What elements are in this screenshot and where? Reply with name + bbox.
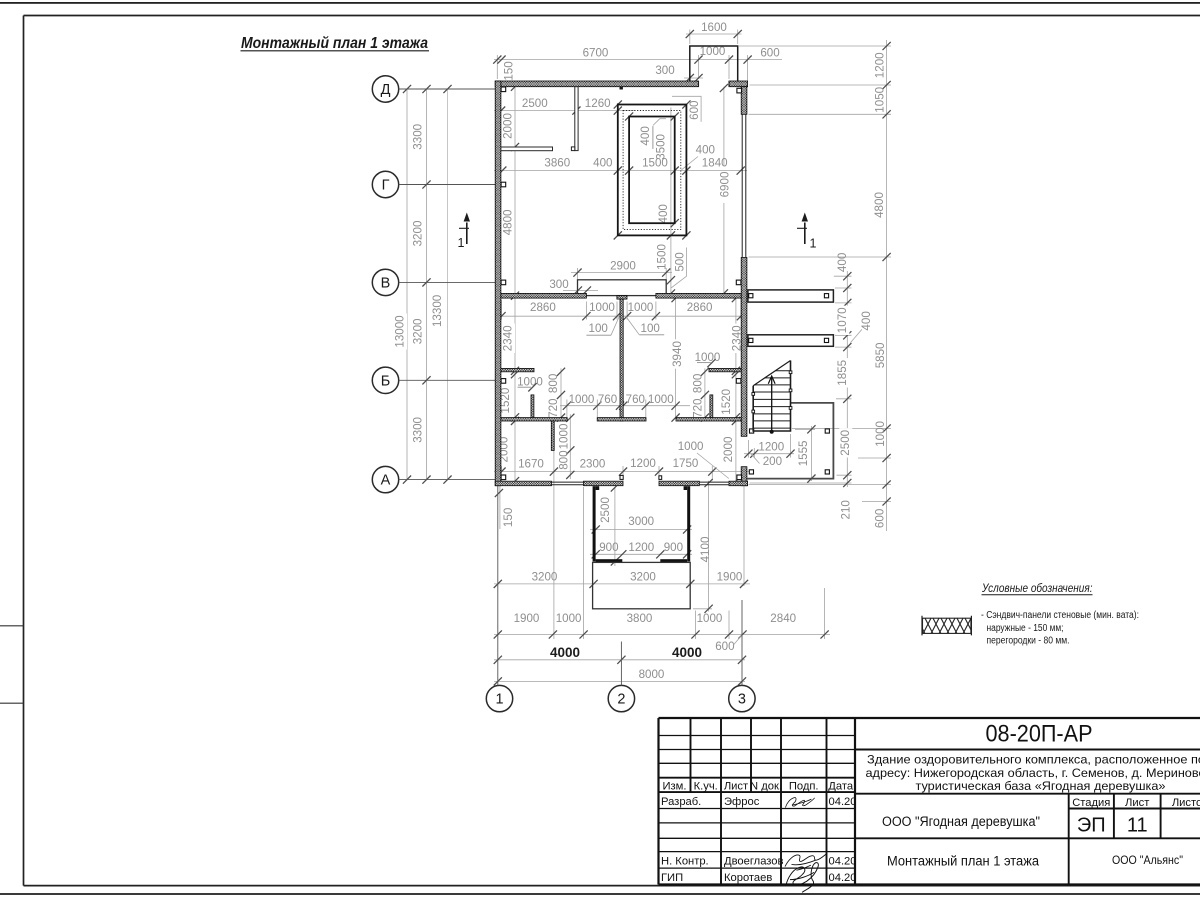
svg-text:11: 11 xyxy=(1127,815,1148,837)
svg-text:3200: 3200 xyxy=(532,570,558,583)
svg-text:720: 720 xyxy=(547,399,560,418)
svg-text:1200: 1200 xyxy=(758,440,784,453)
svg-text:3860: 3860 xyxy=(544,156,570,169)
svg-text:720: 720 xyxy=(691,399,704,418)
svg-text:Г: Г xyxy=(382,178,390,194)
svg-text:1555: 1555 xyxy=(797,441,810,467)
svg-text:1000: 1000 xyxy=(700,45,726,58)
svg-text:04.20: 04.20 xyxy=(829,872,857,884)
svg-text:Листов: Листов xyxy=(1172,797,1200,809)
svg-text:2000: 2000 xyxy=(722,437,735,463)
svg-text:1000: 1000 xyxy=(874,421,887,447)
svg-text:А: А xyxy=(381,473,391,489)
svg-text:400: 400 xyxy=(657,204,670,223)
svg-text:1000: 1000 xyxy=(697,612,723,625)
svg-text:наружные - 150 мм;: наружные - 150 мм; xyxy=(987,623,1064,634)
svg-text:400: 400 xyxy=(860,311,873,330)
svg-text:4800: 4800 xyxy=(502,210,515,236)
svg-text:6700: 6700 xyxy=(583,47,609,60)
svg-text:1: 1 xyxy=(810,237,817,251)
svg-text:13300: 13300 xyxy=(431,295,444,327)
svg-text:400: 400 xyxy=(696,143,715,156)
svg-text:1000: 1000 xyxy=(517,375,543,388)
svg-text:200: 200 xyxy=(763,455,782,468)
svg-text:ГИП: ГИП xyxy=(661,872,683,884)
svg-text:100: 100 xyxy=(589,322,608,335)
svg-text:2000: 2000 xyxy=(502,113,515,139)
svg-text:1500: 1500 xyxy=(656,244,669,270)
svg-text:Разраб.: Разраб. xyxy=(661,796,701,808)
svg-text:1750: 1750 xyxy=(673,457,699,470)
svg-text:1000: 1000 xyxy=(556,612,582,625)
svg-text:300: 300 xyxy=(549,278,568,291)
svg-text:8000: 8000 xyxy=(639,668,665,681)
svg-text:Монтажный план 1 этажа: Монтажный план 1 этажа xyxy=(887,853,1039,869)
svg-text:150: 150 xyxy=(502,61,515,80)
svg-text:4800: 4800 xyxy=(873,192,886,218)
svg-text:Лист: Лист xyxy=(724,780,748,792)
svg-text:600: 600 xyxy=(874,509,887,528)
svg-text:1000: 1000 xyxy=(695,351,721,364)
svg-text:Условные обозначения:: Условные обозначения: xyxy=(981,582,1092,595)
svg-text:600: 600 xyxy=(760,47,779,60)
svg-text:4000: 4000 xyxy=(672,645,702,660)
svg-text:1200: 1200 xyxy=(628,541,654,554)
svg-text:2860: 2860 xyxy=(530,301,556,314)
svg-text:2860: 2860 xyxy=(687,301,713,314)
svg-text:2500: 2500 xyxy=(839,430,852,456)
svg-text:3300: 3300 xyxy=(412,124,425,150)
svg-text:3200: 3200 xyxy=(412,319,425,345)
svg-text:Двоеглазов: Двоеглазов xyxy=(724,856,784,868)
svg-text:- Сэндвич-панели стеновые (мин: - Сэндвич-панели стеновые (мин. вата): xyxy=(981,610,1139,621)
svg-text:2840: 2840 xyxy=(770,612,796,625)
svg-text:3: 3 xyxy=(738,692,746,708)
svg-text:1900: 1900 xyxy=(717,570,743,583)
svg-text:900: 900 xyxy=(599,541,618,554)
svg-text:Б: Б xyxy=(381,373,391,389)
svg-text:3200: 3200 xyxy=(412,221,425,247)
svg-text:2500: 2500 xyxy=(599,497,612,523)
svg-text:600: 600 xyxy=(715,640,734,653)
svg-text:5850: 5850 xyxy=(874,343,887,369)
svg-text:Стадия: Стадия xyxy=(1072,797,1110,809)
svg-text:1520: 1520 xyxy=(720,389,733,415)
svg-text:1840: 1840 xyxy=(702,156,728,169)
svg-text:400: 400 xyxy=(639,126,652,145)
svg-text:2: 2 xyxy=(617,692,625,708)
svg-text:2900: 2900 xyxy=(610,259,636,272)
svg-text:3300: 3300 xyxy=(412,417,425,443)
svg-text:760: 760 xyxy=(598,393,617,406)
svg-text:1: 1 xyxy=(458,236,465,250)
svg-text:К.уч.: К.уч. xyxy=(694,780,718,792)
svg-text:600: 600 xyxy=(688,101,701,120)
svg-text:ООО "Альянс": ООО "Альянс" xyxy=(1112,854,1183,867)
svg-text:1000: 1000 xyxy=(569,393,595,406)
svg-text:400: 400 xyxy=(593,156,612,169)
svg-text:500: 500 xyxy=(673,252,686,271)
svg-text:3000: 3000 xyxy=(628,515,654,528)
svg-text:Коротаев: Коротаев xyxy=(724,872,772,884)
svg-text:1000: 1000 xyxy=(678,440,704,453)
svg-text:Изм.: Изм. xyxy=(663,780,687,792)
svg-text:ООО "Ягодная деревушка": ООО "Ягодная деревушка" xyxy=(882,814,1040,830)
svg-text:2500: 2500 xyxy=(522,97,548,110)
svg-text:1000: 1000 xyxy=(628,301,654,314)
svg-text:3800: 3800 xyxy=(627,612,653,625)
svg-text:04.20: 04.20 xyxy=(829,856,857,868)
svg-text:6900: 6900 xyxy=(719,172,732,198)
svg-text:Эфрос: Эфрос xyxy=(724,796,760,808)
svg-text:400: 400 xyxy=(836,253,849,272)
svg-text:1260: 1260 xyxy=(585,97,611,110)
svg-text:04.20: 04.20 xyxy=(829,796,857,808)
svg-text:1: 1 xyxy=(495,692,503,708)
svg-text:1070: 1070 xyxy=(836,307,849,333)
svg-text:Н. Контр.: Н. Контр. xyxy=(661,856,709,868)
svg-text:900: 900 xyxy=(664,541,683,554)
svg-text:1200: 1200 xyxy=(874,52,887,78)
svg-text:1200: 1200 xyxy=(630,457,656,470)
svg-text:300: 300 xyxy=(655,64,674,77)
svg-text:760: 760 xyxy=(626,393,645,406)
svg-text:13000: 13000 xyxy=(394,315,407,347)
svg-text:Дата: Дата xyxy=(828,780,854,792)
svg-text:Лист: Лист xyxy=(1125,797,1149,809)
svg-text:Монтажный план 1 этажа: Монтажный план 1 этажа xyxy=(241,35,428,52)
svg-text:N док.: N док. xyxy=(750,780,782,792)
svg-text:150: 150 xyxy=(502,508,515,527)
svg-text:3500: 3500 xyxy=(654,134,667,160)
svg-text:Здание оздоровительного компле: Здание оздоровительного комплекса, распо… xyxy=(867,753,1200,767)
svg-text:1000: 1000 xyxy=(648,393,674,406)
svg-text:1855: 1855 xyxy=(836,360,849,386)
svg-text:4000: 4000 xyxy=(550,645,580,660)
svg-text:2300: 2300 xyxy=(580,458,606,471)
svg-text:Подп.: Подп. xyxy=(789,780,819,792)
svg-text:210: 210 xyxy=(839,500,852,519)
svg-text:3940: 3940 xyxy=(671,341,684,367)
svg-text:4100: 4100 xyxy=(699,537,712,563)
svg-text:1050: 1050 xyxy=(874,87,887,113)
svg-text:800: 800 xyxy=(691,374,704,393)
svg-text:3200: 3200 xyxy=(630,570,656,583)
svg-text:В: В xyxy=(381,275,391,291)
svg-text:08-20П-АР: 08-20П-АР xyxy=(986,721,1093,748)
svg-text:1900: 1900 xyxy=(514,612,540,625)
svg-text:100: 100 xyxy=(641,322,660,335)
svg-text:перегородки - 80 мм.: перегородки - 80 мм. xyxy=(987,636,1070,647)
svg-text:ЭП: ЭП xyxy=(1077,815,1106,837)
svg-text:1600: 1600 xyxy=(701,21,727,34)
svg-text:2340: 2340 xyxy=(502,325,515,351)
svg-text:Д: Д xyxy=(381,82,391,98)
svg-text:1670: 1670 xyxy=(518,458,544,471)
svg-text:800: 800 xyxy=(557,450,570,469)
svg-text:туристическая база «Ягодная де: туристическая база «Ягодная деревушка» xyxy=(916,779,1166,793)
svg-text:800: 800 xyxy=(547,374,560,393)
svg-text:1000: 1000 xyxy=(557,424,570,450)
svg-text:1000: 1000 xyxy=(589,301,615,314)
svg-text:адресу: Нижегородская область,: адресу: Нижегородская область, г. Семено… xyxy=(866,766,1200,780)
